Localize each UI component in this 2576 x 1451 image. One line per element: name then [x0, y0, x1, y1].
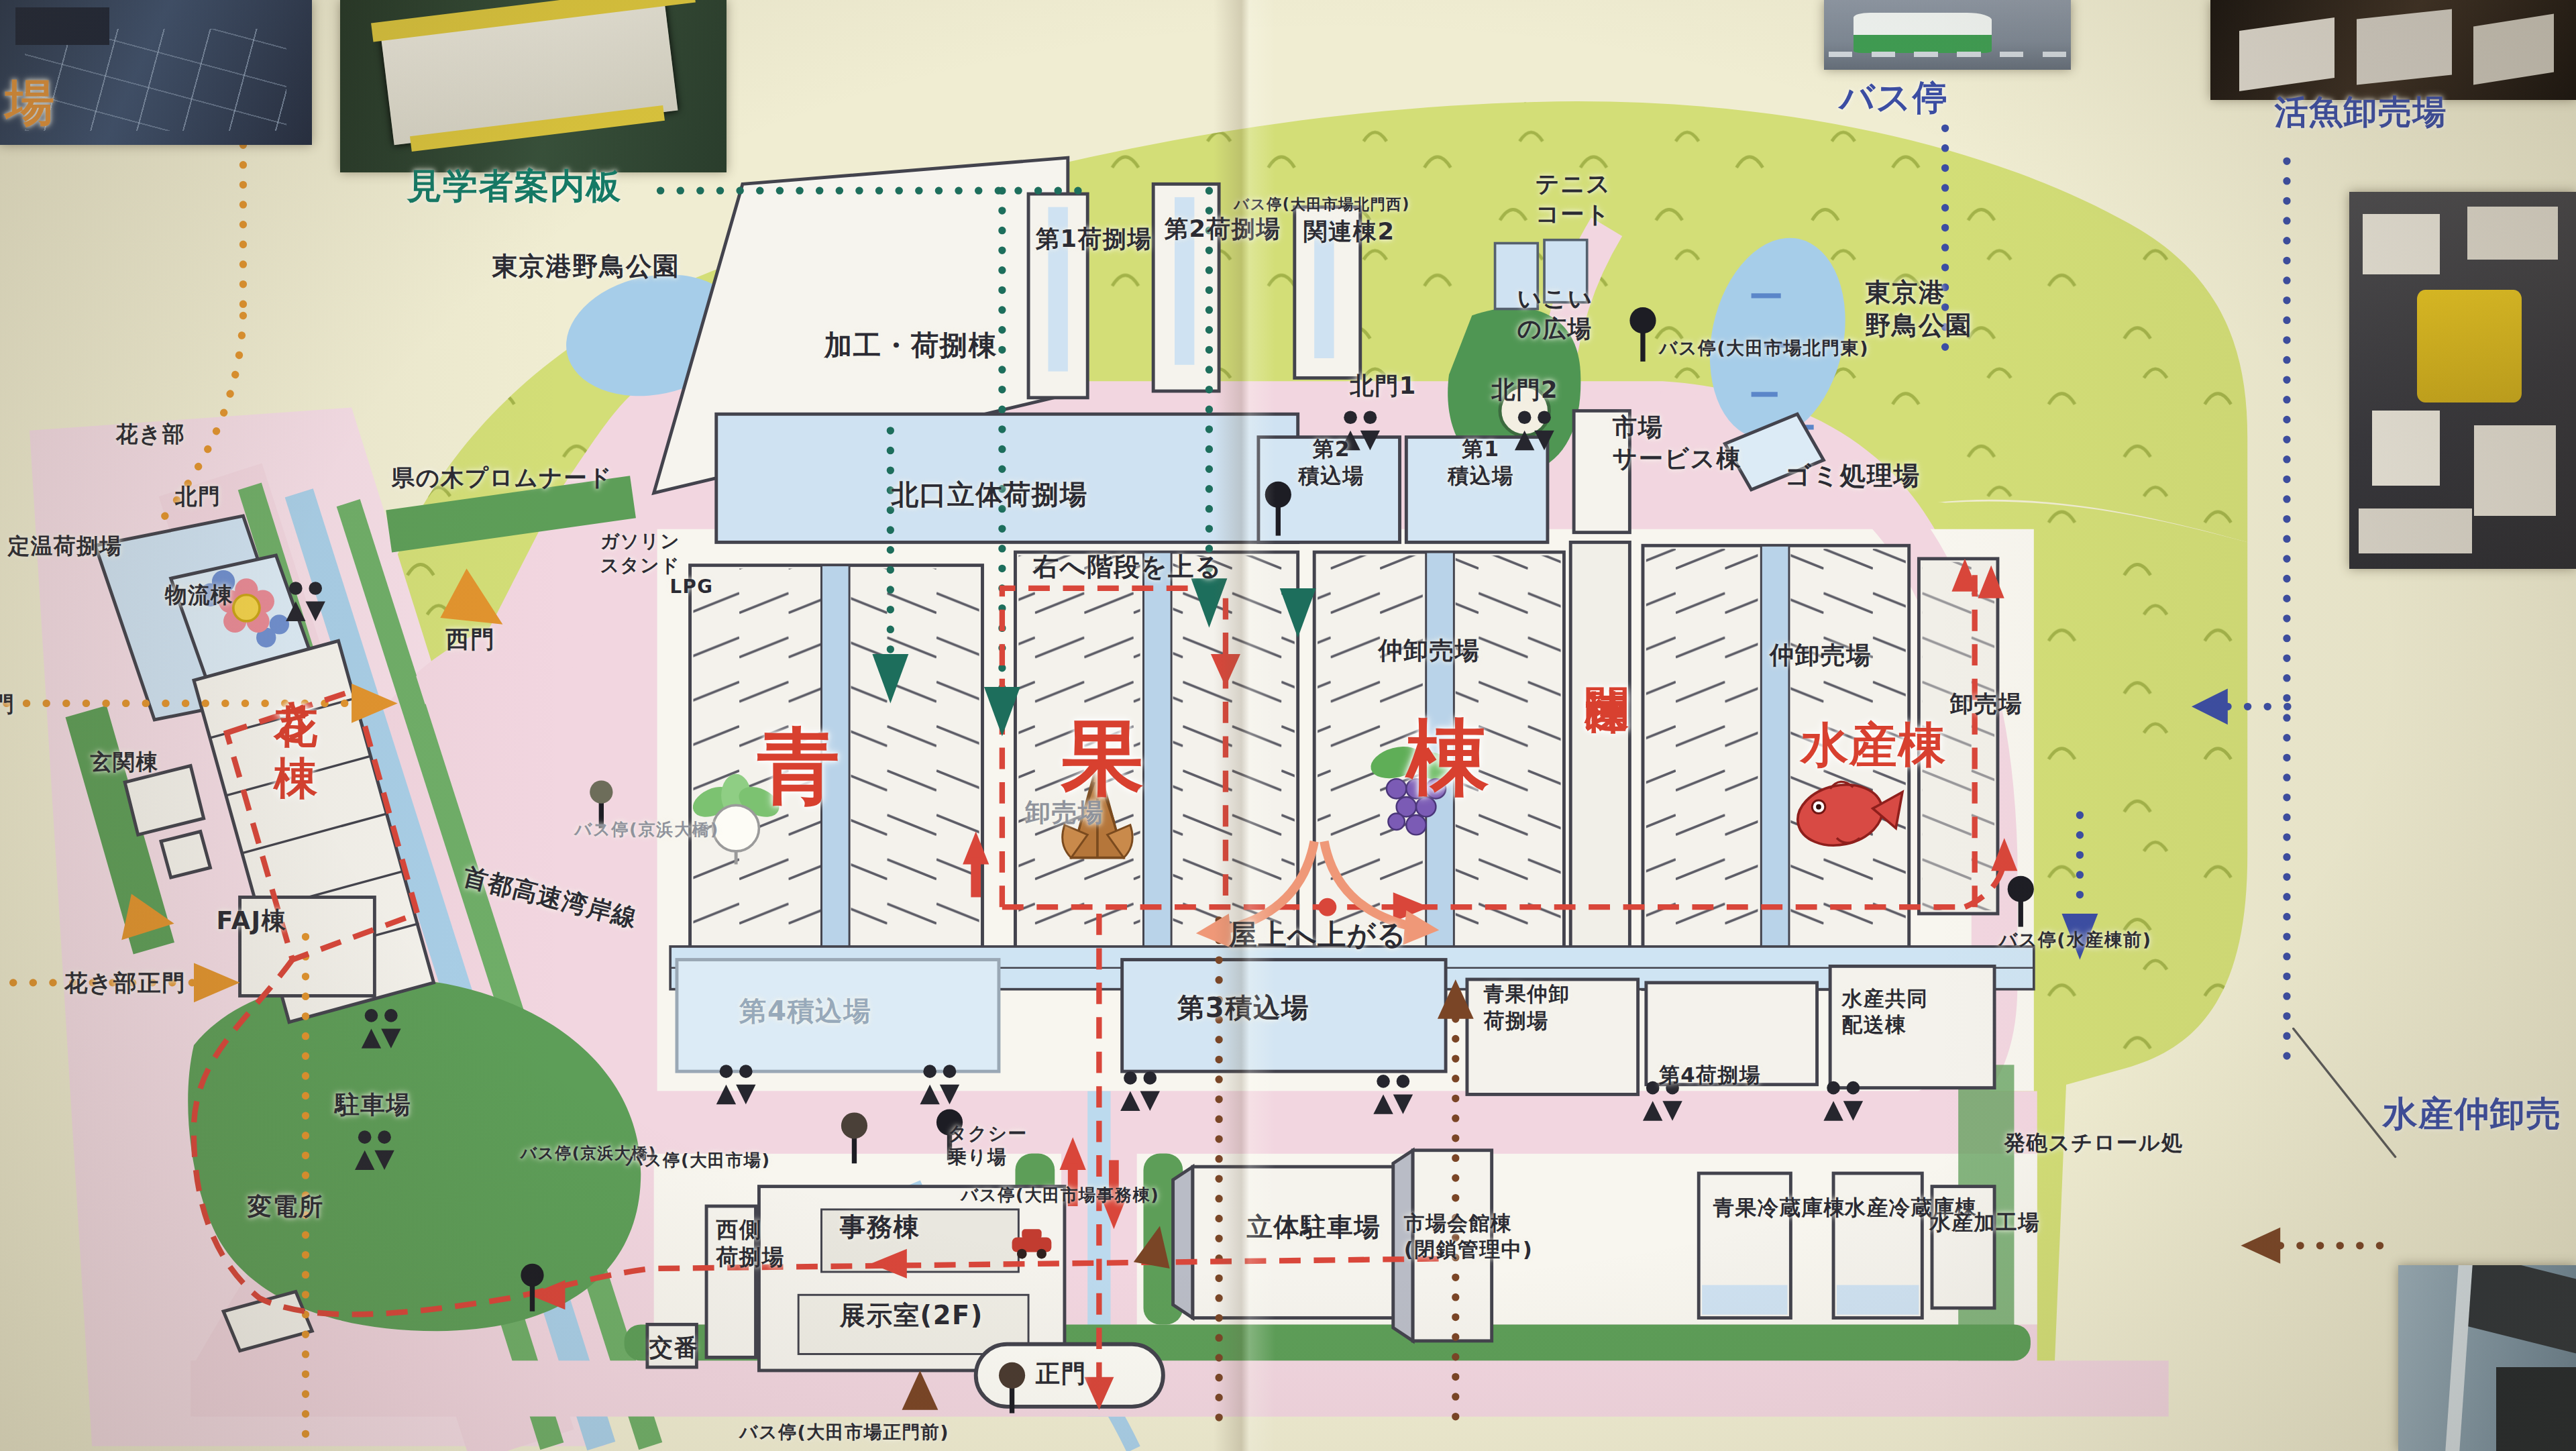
label-busstop-ota: バス停(大田市場): [626, 1149, 770, 1171]
label-faj: FAJ棟: [217, 906, 287, 937]
label-kaikan: 市場会館棟 (閉鎖管理中): [1404, 1210, 1533, 1263]
label-nishigawa: 西側 荷捌場: [716, 1216, 785, 1273]
photo-guide-board: [340, 0, 727, 172]
label-rittai-parking: 立体駐車場: [1247, 1210, 1381, 1243]
label-nishimon: 西門: [445, 624, 495, 654]
label-stairs-note: 右へ階段を上る: [1033, 550, 1222, 583]
label-processing-bldg: 加工・荷捌棟: [824, 328, 998, 364]
label-busstop-suisan: バス停(水産棟前): [1999, 928, 2152, 951]
photo-fish-boxes: [2210, 0, 2576, 100]
label-kaki-tou: 花き棟: [268, 669, 324, 722]
label-kitaguchi-rittai: 北口立体荷捌場: [892, 478, 1088, 513]
label-suisan-kyodo: 水産共同 配送棟: [1842, 985, 1929, 1038]
label-tsumikomi-1: 第1 積込場: [1448, 435, 1514, 490]
label-gomi: ゴミ処理場: [1785, 459, 1920, 492]
label-promenade: 県の木プロムナード: [392, 463, 613, 492]
label-kitamon-1: 北門1: [1350, 370, 1417, 400]
label-tsumikomi-4: 第4積込場: [739, 994, 871, 1029]
label-bird-park-west: 東京港野鳥公園: [492, 250, 680, 282]
label-hall-tou: 棟: [1407, 705, 1489, 810]
label-kaki-kitamon: 北門: [175, 483, 221, 511]
label-bird-park-east: 東京港 野鳥公園: [1865, 276, 1972, 341]
label-hall-ao: 青: [757, 714, 840, 819]
label-seimon: 正門: [1036, 1358, 1087, 1390]
label-taxi-stand: タクシー 乗り場: [948, 1122, 1028, 1169]
label-busstop-kitamon-higashi: バス停(大田市場北門東): [1659, 337, 1869, 360]
label-koban: 交番: [649, 1332, 699, 1362]
label-lpg: LPG: [669, 575, 713, 598]
label-cargo-4: 第4荷捌場: [1659, 1062, 1761, 1088]
photo-caption-live-fish: 活魚卸売場: [2275, 91, 2447, 134]
label-oroshi-d: 卸売場: [1950, 689, 2023, 718]
label-tenji: 展示室(2F): [840, 1299, 983, 1332]
ota-market-map-page: 場見学者案内板バス停活魚卸売場水産仲卸売東京港野鳥公園加工・荷捌棟第1荷捌場第2…: [0, 0, 2576, 1451]
label-minamimon: 門: [0, 691, 15, 719]
photo-caption-bus-stop: バス停: [1839, 75, 1949, 119]
label-rooftop-note: 屋上へ上がる: [1229, 917, 1407, 953]
label-tsumikomi-3: 第3積込場: [1177, 991, 1309, 1026]
label-busstop-jimu: バス停(大田市場事務棟): [961, 1184, 1159, 1205]
label-seika-nakaoroshi: 青果仲卸 荷捌場: [1484, 981, 1570, 1034]
label-no1-cargo: 第1荷捌場: [1036, 223, 1152, 254]
label-expressway: 首都高速湾岸線: [460, 861, 641, 935]
label-service-bldg: 市場 サービス棟: [1613, 412, 1742, 474]
label-ikoi-plaza: いこい の広場: [1517, 283, 1593, 343]
label-teion: 定温荷捌場: [8, 533, 123, 561]
label-nakaoroshi-d: 仲卸売場: [1770, 640, 1872, 671]
label-gas-station: ガソリン スタンド: [600, 529, 680, 577]
photo-caption-fish-wholesale: 水産仲卸売: [2383, 1091, 2562, 1136]
label-layer: 場見学者案内板バス停活魚卸売場水産仲卸売東京港野鳥公園加工・荷捌棟第1荷捌場第2…: [0, 0, 2576, 1451]
label-hall-ka: 果: [1061, 705, 1144, 810]
photo-forklift: [2349, 192, 2576, 569]
photo-caption-ichiba: 場: [5, 71, 56, 133]
label-kanren-2: 関連棟2: [1303, 216, 1395, 246]
label-jimu: 事務棟: [840, 1210, 920, 1243]
label-kaki-seimon: 花き部正門: [64, 968, 186, 998]
label-parking: 駐車場: [335, 1089, 411, 1121]
label-no2-cargo: 第2荷捌場: [1165, 213, 1281, 244]
photo-bus: [1824, 0, 2072, 70]
label-kaki-bu: 花き部: [116, 421, 185, 449]
photo-caption-guide-board: 見学者案内板: [407, 164, 622, 208]
label-oroshi-a: 卸売場: [1025, 796, 1104, 828]
label-tsumikomi-2: 第2 積込場: [1298, 435, 1364, 490]
label-nakaoroshi-c: 仲卸売場: [1378, 635, 1480, 667]
label-busstop-keihin-w: バス停(京浜大橋): [574, 818, 718, 840]
label-kitamon-2: 北門2: [1491, 374, 1558, 405]
label-seika-reizo: 青果冷蔵庫棟: [1713, 1194, 1846, 1221]
label-suisan-kako: 水産加工場: [1929, 1209, 2040, 1236]
label-kanren: 関連棟: [1579, 653, 1635, 656]
label-henden: 変電所: [248, 1191, 324, 1223]
label-genkan: 玄関棟: [90, 749, 158, 777]
label-busstop-kitamon-nishi: バス停(大田市場北門西): [1234, 195, 1409, 214]
label-suisan-tou: 水産棟: [1801, 715, 1947, 776]
label-tennis-court: テニス コート: [1536, 168, 1611, 229]
label-happo: 発砲スチロール処: [2004, 1129, 2184, 1156]
photo-building-corner: [2398, 1265, 2576, 1451]
label-butsuryu: 物流棟: [165, 582, 233, 610]
label-busstop-seimon: バス停(大田市場正門前): [739, 1421, 949, 1444]
